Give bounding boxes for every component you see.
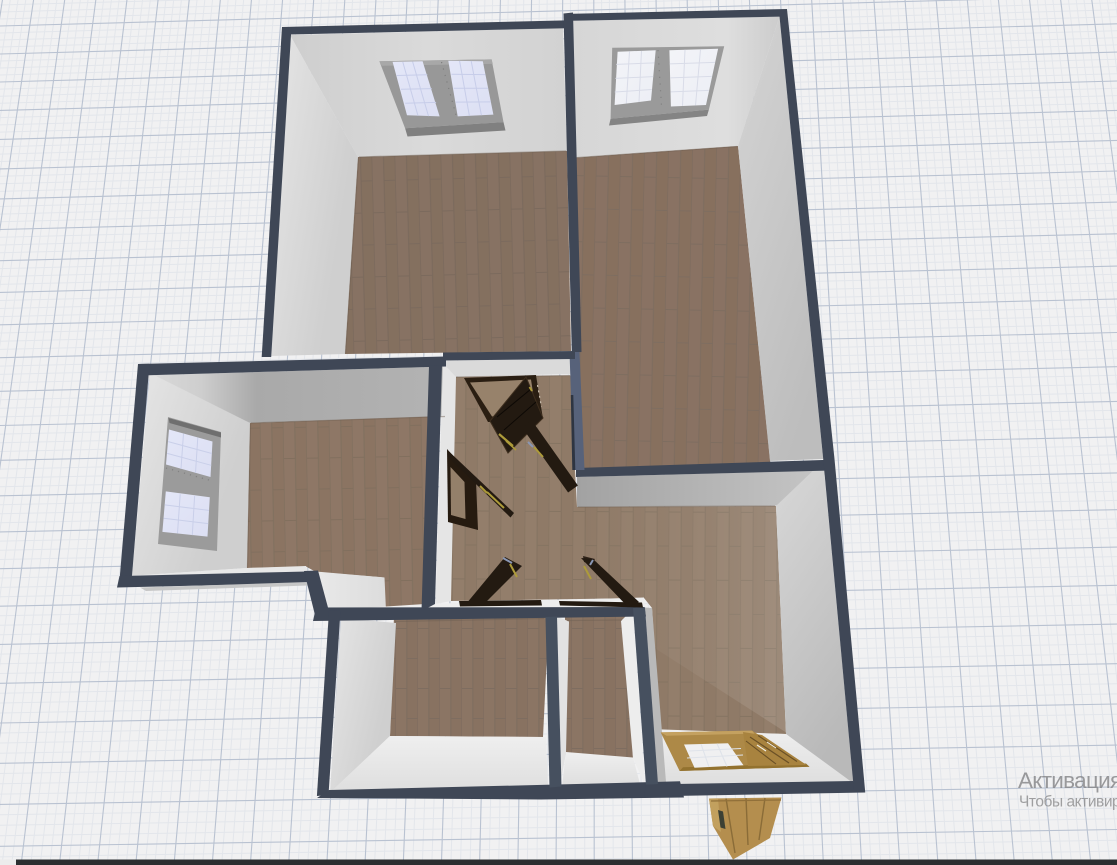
- svg-text:Активация Windows: Активация Windows: [1018, 768, 1117, 793]
- svg-text:Чтобы активировать Windows, пе: Чтобы активировать Windows, перейдите: [1019, 794, 1117, 811]
